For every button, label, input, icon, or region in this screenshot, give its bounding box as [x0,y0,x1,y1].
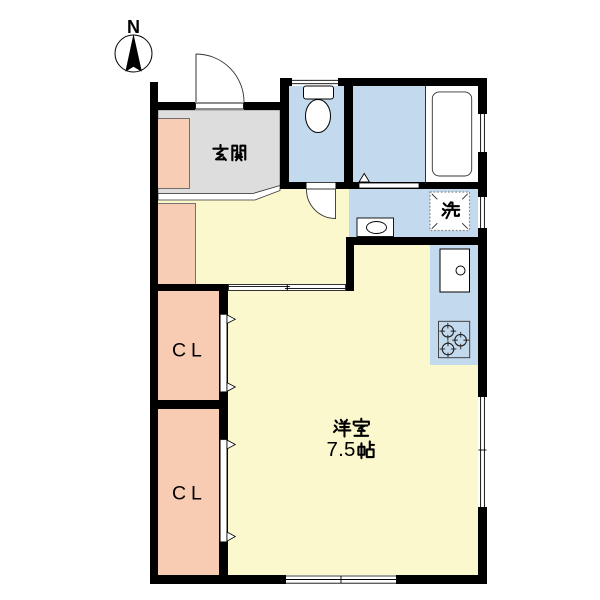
svg-text:L: L [191,483,202,505]
svg-text:C: C [172,483,186,505]
svg-text:7.5: 7.5 [327,438,356,461]
svg-text:L: L [191,340,202,362]
svg-text:C: C [172,340,186,362]
svg-text:N: N [127,17,140,37]
